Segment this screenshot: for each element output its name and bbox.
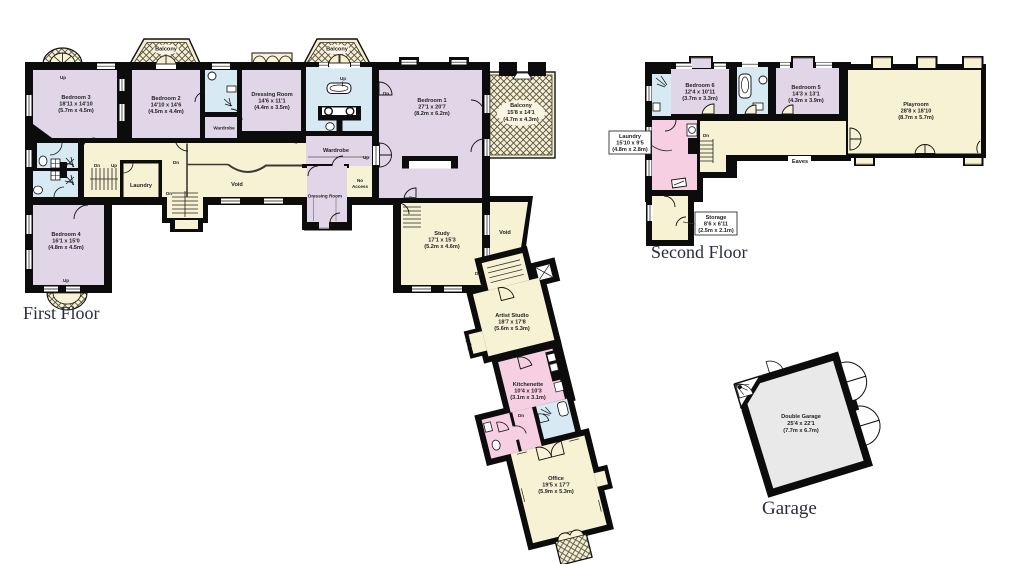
svg-text:Up: Up <box>63 278 69 283</box>
svg-text:Up: Up <box>111 163 117 168</box>
svg-text:Balcony: Balcony <box>155 47 178 53</box>
svg-text:Balcony: Balcony <box>326 47 349 53</box>
svg-text:Dn: Dn <box>703 133 709 138</box>
svg-text:Balcony: Balcony <box>510 103 533 109</box>
svg-text:(2.5m x 2.1m): (2.5m x 2.1m) <box>698 228 734 234</box>
svg-text:Storage: Storage <box>706 215 727 221</box>
svg-text:17'1 x 15'3: 17'1 x 15'3 <box>428 238 456 244</box>
svg-text:28'8 x 18'10: 28'8 x 18'10 <box>901 109 932 115</box>
svg-text:(4.4m x 3.5m): (4.4m x 3.5m) <box>254 105 290 111</box>
svg-text:Dn: Dn <box>166 191 172 196</box>
svg-text:25'4 x 22'1: 25'4 x 22'1 <box>787 421 815 427</box>
svg-text:Double Garage: Double Garage <box>781 414 821 420</box>
svg-text:Dn: Dn <box>409 196 415 201</box>
svg-text:Dressing Room: Dressing Room <box>251 92 292 98</box>
svg-text:Eaves: Eaves <box>792 159 808 165</box>
svg-text:Second Floor: Second Floor <box>651 242 748 262</box>
svg-text:Bedroom 1: Bedroom 1 <box>417 98 446 104</box>
svg-text:Wardrobe: Wardrobe <box>213 126 235 131</box>
svg-text:Dn: Dn <box>383 91 389 96</box>
svg-text:18'7 x 17'8: 18'7 x 17'8 <box>498 320 526 326</box>
svg-text:Up: Up <box>363 155 369 160</box>
svg-text:14'3 x 13'1: 14'3 x 13'1 <box>792 92 820 98</box>
svg-text:12'4 x 10'11: 12'4 x 10'11 <box>685 90 715 96</box>
svg-text:Office: Office <box>548 476 564 482</box>
svg-text:(7.7m x 6.7m): (7.7m x 6.7m) <box>783 428 819 434</box>
svg-text:10'4 x 10'3: 10'4 x 10'3 <box>514 389 542 395</box>
svg-text:Bedroom 3: Bedroom 3 <box>61 95 90 101</box>
svg-text:(4.3m x 3.9m): (4.3m x 3.9m) <box>788 98 824 104</box>
svg-text:Playroom: Playroom <box>903 102 929 108</box>
svg-text:(3.1m x 3.1m): (3.1m x 3.1m) <box>510 395 546 401</box>
svg-text:Artist Studio: Artist Studio <box>495 313 529 319</box>
svg-text:Bedroom 5: Bedroom 5 <box>791 85 820 91</box>
svg-text:No: No <box>357 178 363 183</box>
svg-text:15'10 x 9'5: 15'10 x 9'5 <box>616 141 644 147</box>
svg-text:Study: Study <box>434 231 450 237</box>
svg-text:Garage: Garage <box>762 498 817 519</box>
svg-text:Bedroom 2: Bedroom 2 <box>151 96 180 102</box>
svg-text:Bedroom 4: Bedroom 4 <box>51 232 81 238</box>
svg-text:Up: Up <box>60 75 66 80</box>
svg-text:(4.8m x 4.5m): (4.8m x 4.5m) <box>48 245 84 251</box>
svg-text:14'10 x 14'6: 14'10 x 14'6 <box>151 103 182 109</box>
svg-text:(5.9m x 5.3m): (5.9m x 5.3m) <box>538 489 574 495</box>
svg-text:(4.8m x 2.8m): (4.8m x 2.8m) <box>612 147 648 153</box>
svg-text:15'8 x 14'1: 15'8 x 14'1 <box>507 110 535 116</box>
svg-text:Void: Void <box>231 182 243 188</box>
svg-text:First Floor: First Floor <box>23 303 100 323</box>
svg-text:(4.5m x 4.4m): (4.5m x 4.4m) <box>148 109 184 115</box>
svg-text:Dn: Dn <box>518 413 524 418</box>
svg-text:Dn: Dn <box>475 271 481 276</box>
svg-text:Laundry: Laundry <box>619 134 642 140</box>
svg-text:Dn: Dn <box>173 160 179 165</box>
svg-text:(5.2m x 4.6m): (5.2m x 4.6m) <box>424 244 460 250</box>
svg-text:Wardrobe: Wardrobe <box>323 148 349 154</box>
svg-text:(8.7m x 5.7m): (8.7m x 5.7m) <box>898 115 934 121</box>
svg-text:Bedroom 6: Bedroom 6 <box>685 83 714 89</box>
svg-text:8'6 x 6'11: 8'6 x 6'11 <box>704 222 728 228</box>
svg-text:14'6 x 11'1: 14'6 x 11'1 <box>258 99 285 105</box>
svg-text:18'11 x 14'10: 18'11 x 14'10 <box>59 102 92 108</box>
svg-text:Dn: Dn <box>94 163 100 168</box>
svg-text:Laundry: Laundry <box>130 183 153 189</box>
svg-text:16'1 x 15'0: 16'1 x 15'0 <box>52 239 80 245</box>
svg-text:19'5 x 17'7: 19'5 x 17'7 <box>542 483 570 489</box>
svg-text:Kitchenette: Kitchenette <box>513 382 543 388</box>
svg-text:(5.6m x 5.3m): (5.6m x 5.3m) <box>494 326 530 332</box>
svg-text:Dressing Room: Dressing Room <box>308 194 342 199</box>
svg-text:27'1 x 20'7: 27'1 x 20'7 <box>418 105 446 111</box>
svg-text:Void: Void <box>499 230 511 236</box>
svg-text:(3.7m x 3.3m): (3.7m x 3.3m) <box>682 96 718 102</box>
svg-text:(4.7m x 4.3m): (4.7m x 4.3m) <box>503 117 539 123</box>
svg-text:(8.2m x 6.2m): (8.2m x 6.2m) <box>414 111 450 117</box>
svg-text:Access: Access <box>352 184 369 189</box>
svg-text:Up: Up <box>340 76 346 81</box>
svg-text:(5.7m x 4.5m): (5.7m x 4.5m) <box>58 108 94 114</box>
